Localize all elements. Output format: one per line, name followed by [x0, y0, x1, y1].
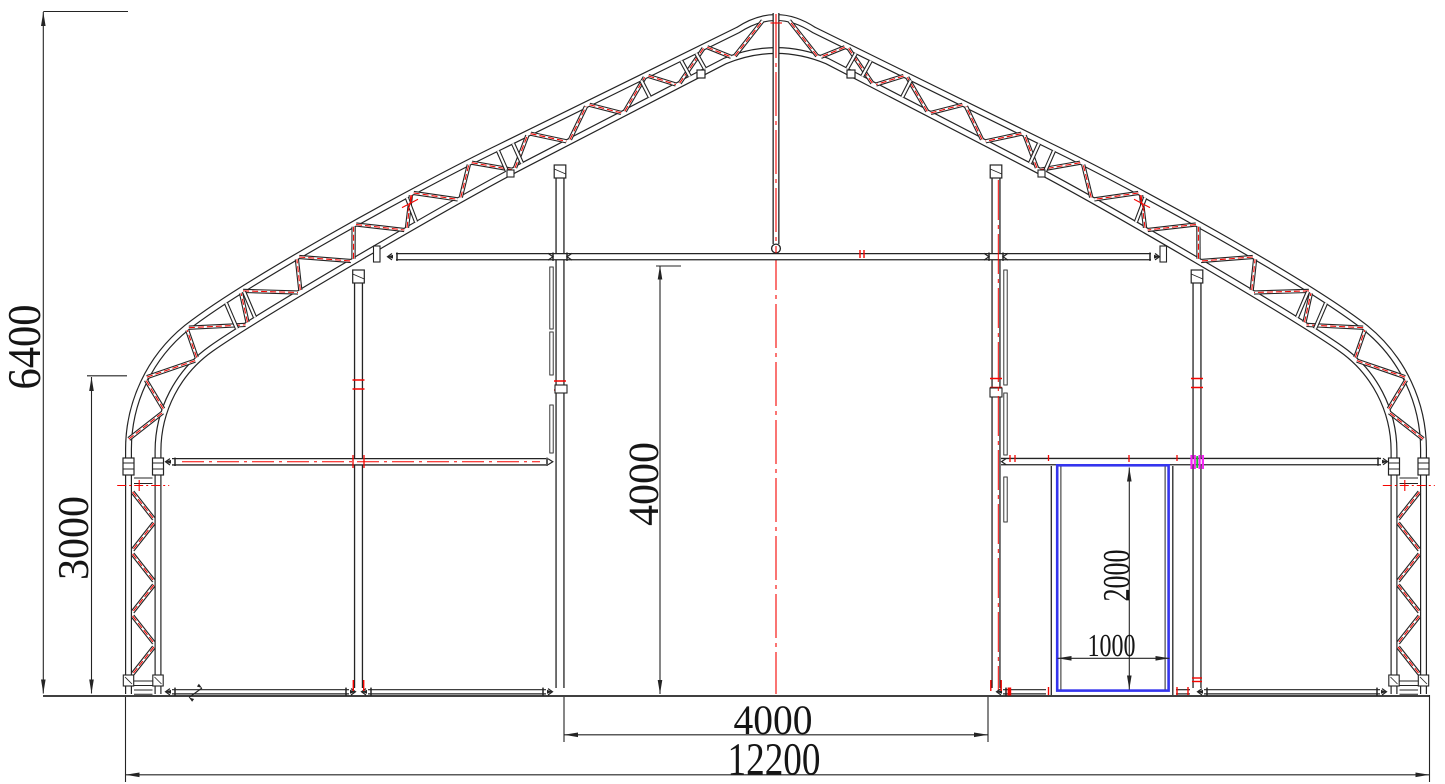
svg-text:1000: 1000	[1088, 627, 1136, 663]
svg-text:4000: 4000	[621, 442, 668, 526]
svg-text:3000: 3000	[49, 496, 98, 580]
svg-text:2000: 2000	[1096, 550, 1138, 602]
svg-text:12200: 12200	[728, 734, 821, 784]
svg-text:6400: 6400	[0, 305, 51, 390]
